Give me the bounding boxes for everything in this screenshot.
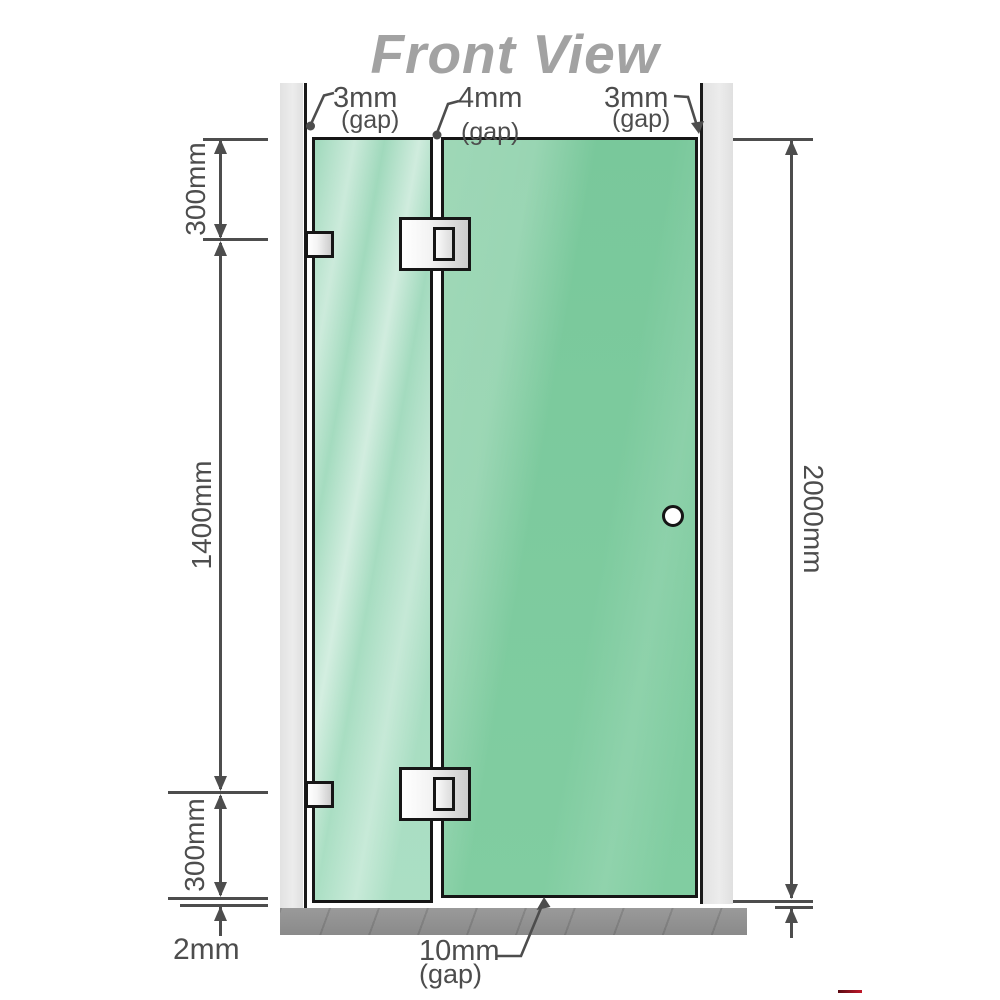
- right-wall: [703, 83, 733, 904]
- hinge-bottom-notch: [433, 777, 455, 811]
- floor-base: [280, 908, 747, 935]
- wall-bracket-top: [305, 231, 334, 258]
- door-handle-knob: [662, 505, 684, 527]
- gap-label-middle-note: (gap): [461, 119, 519, 145]
- hinge-bottom: [399, 767, 471, 821]
- diagram-title: Front View: [300, 22, 730, 86]
- hinge-top: [399, 217, 471, 271]
- gap-label-middle-value: 4mm: [458, 83, 522, 113]
- right-wall-edge-line: [700, 83, 703, 904]
- shower-screen-front-view-diagram: Front View: [0, 0, 1000, 1000]
- red-print-artifact: [838, 990, 862, 993]
- hinge-top-notch: [433, 227, 455, 261]
- gap-label-left-note: (gap): [341, 107, 399, 133]
- left-wall: [280, 83, 303, 908]
- dim-2mm-floor-gap: 2mm: [173, 934, 240, 966]
- gap-label-right-note: (gap): [612, 106, 670, 132]
- wall-bracket-bottom: [305, 781, 334, 808]
- door-glass-panel: [441, 137, 698, 898]
- bottom-gap-note: (gap): [419, 960, 482, 988]
